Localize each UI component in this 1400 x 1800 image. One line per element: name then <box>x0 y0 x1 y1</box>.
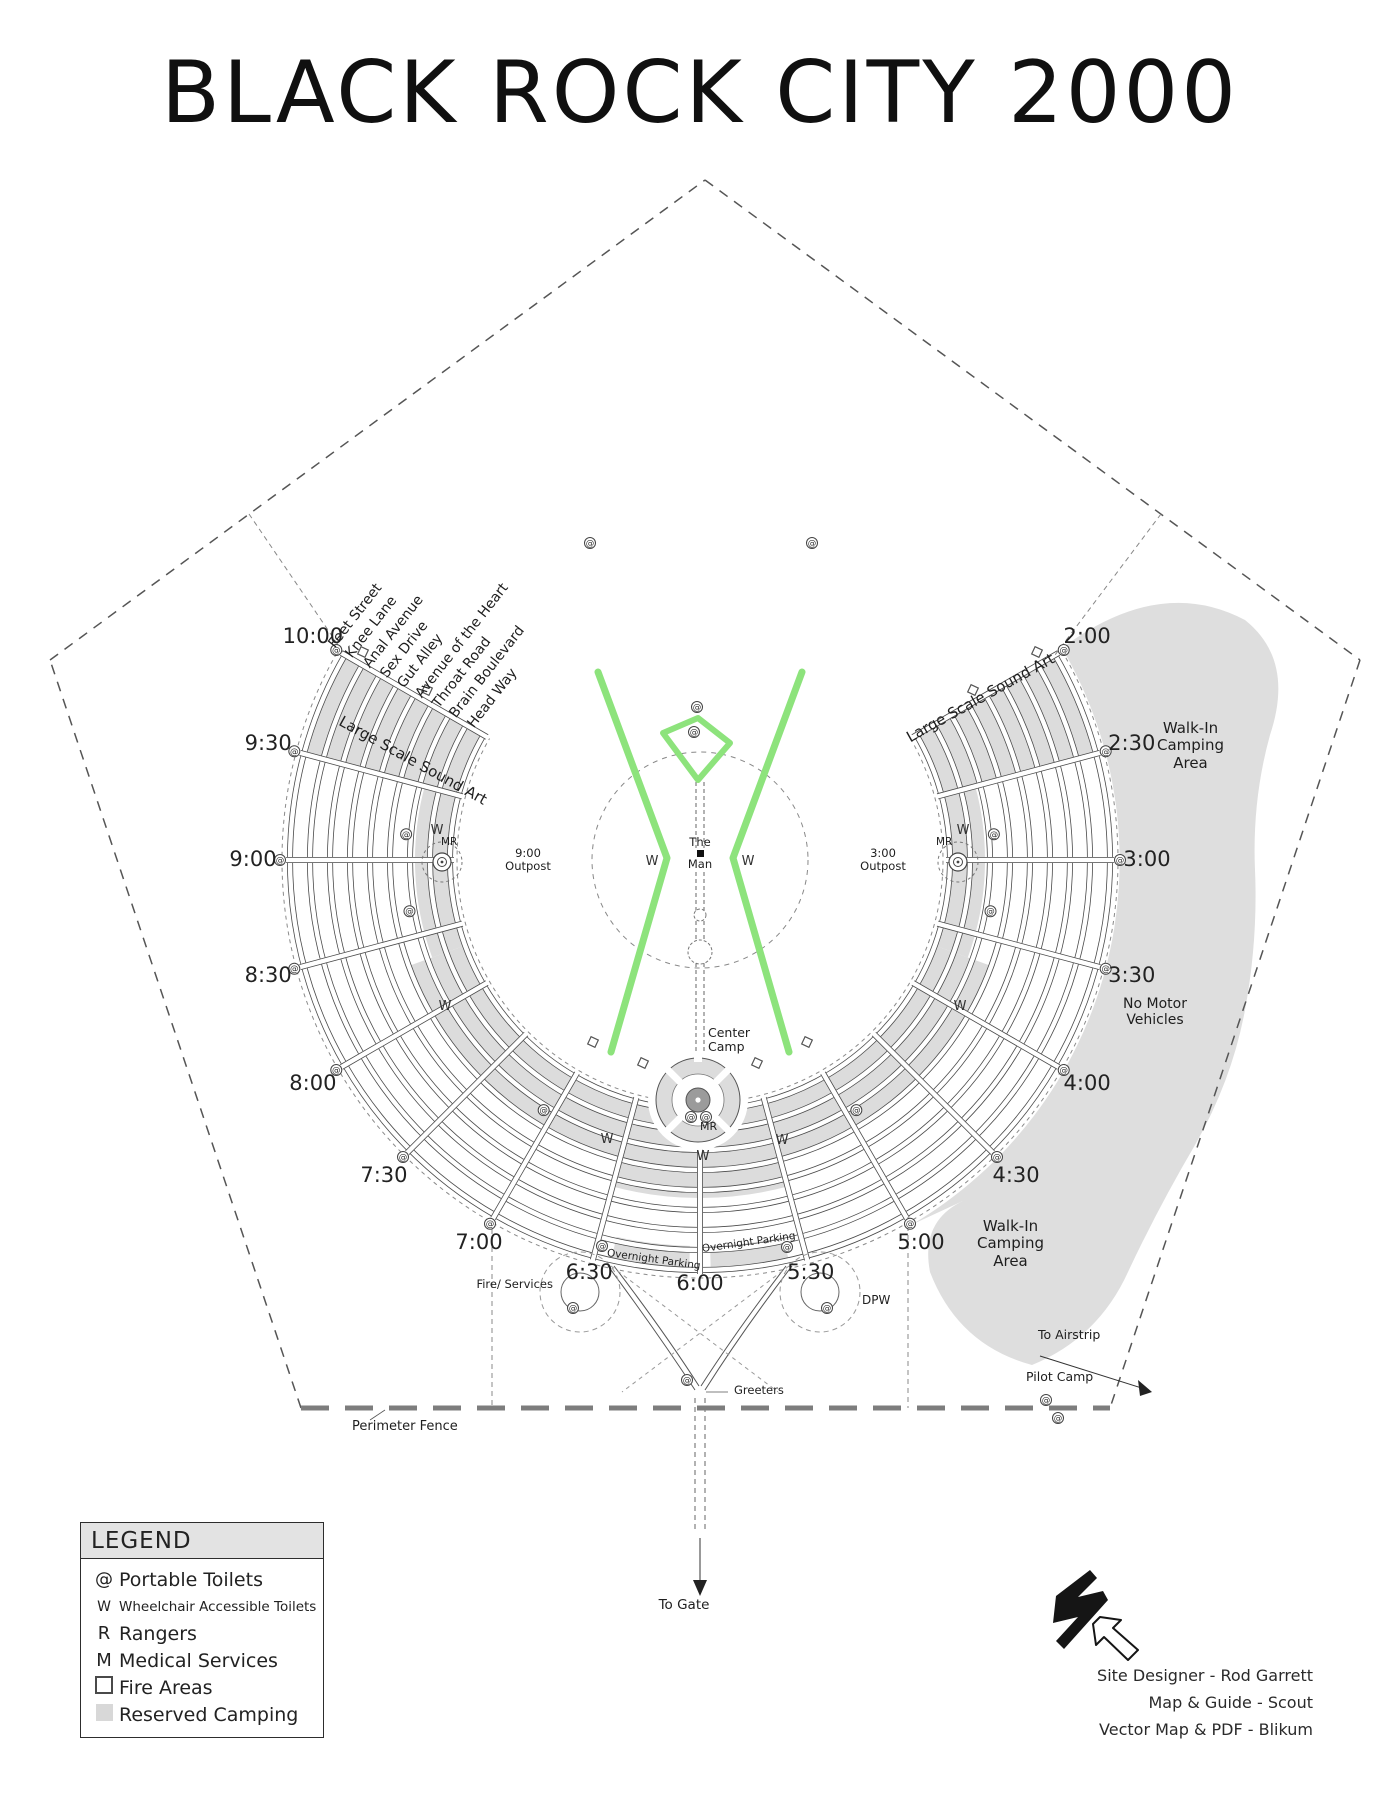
credit-line: Map & Guide - Scout <box>893 1689 1313 1716</box>
the-man-label: The Man <box>664 836 736 871</box>
clock-position-label: 5:00 <box>886 1230 956 1254</box>
perimeter-fence-edge <box>705 180 1360 660</box>
the-man-label-bottom: Man <box>688 857 712 871</box>
clock-position-label: 4:00 <box>1052 1071 1122 1095</box>
svg-text:@: @ <box>1042 1396 1051 1406</box>
clock-position-label: 7:30 <box>349 1163 419 1187</box>
reserved-camping-swatch-cell <box>89 1704 119 1726</box>
portable-toilet-icon: @ <box>807 538 818 550</box>
svg-text:@: @ <box>687 1113 696 1123</box>
svg-text:@: @ <box>399 1153 408 1163</box>
clock-position-label: 2:30 <box>1097 731 1167 755</box>
wheelchair-toilet-icon: W <box>439 999 452 1014</box>
clock-position-label: 3:00 <box>1112 847 1182 871</box>
legend-item: Reserved Camping <box>89 1701 315 1728</box>
svg-text:@: @ <box>690 728 699 738</box>
wheelchair-toilet-icon: W <box>601 1132 614 1147</box>
legend-symbol: R <box>89 1623 119 1644</box>
svg-text:@: @ <box>823 1304 832 1314</box>
legend-symbol: @ <box>89 1569 119 1590</box>
credit-line: Vector Map & PDF - Blikum <box>893 1716 1313 1743</box>
svg-text:@: @ <box>486 1220 495 1230</box>
clock-position-label: 2:00 <box>1052 624 1122 648</box>
legend-item: Fire Areas <box>89 1674 315 1701</box>
outpost-9-label: 9:00 Outpost <box>497 847 559 873</box>
svg-text:@: @ <box>586 539 595 549</box>
svg-text:@: @ <box>852 1106 861 1116</box>
the-man-label-top: The <box>689 835 710 849</box>
portable-toilet-icon: @ <box>822 1303 833 1315</box>
clock-position-label: 3:30 <box>1097 963 1167 987</box>
fire-area-icon <box>802 1037 813 1048</box>
perimeter-fence-label: Perimeter Fence <box>352 1420 458 1435</box>
perimeter-fence-edge <box>50 660 301 1408</box>
mr-label-center-camp: MR <box>700 1121 717 1134</box>
clock-position-label: 6:30 <box>554 1260 624 1284</box>
portable-toilet-icon: @ <box>905 1218 916 1230</box>
fire-area-swatch <box>95 1676 113 1694</box>
pilot-camp-label: Pilot Camp <box>1026 1370 1093 1384</box>
brc-map-page: @@@@@@@@@@@@@@@@@@@WWWWWWWWW@@@@@@@@@@@@… <box>0 0 1400 1800</box>
wheelchair-toilet-icon: W <box>697 1149 710 1164</box>
wheelchair-toilet-icon: W <box>646 854 659 869</box>
wheelchair-toilet-icon: W <box>776 1133 789 1148</box>
fire-area-icon <box>588 1037 599 1048</box>
credits: Site Designer - Rod GarrettMap & Guide -… <box>893 1662 1313 1743</box>
portable-toilet-icon: @ <box>485 1218 496 1230</box>
greeters-label: Greeters <box>734 1384 784 1397</box>
legend-box: LEGEND @Portable ToiletsWWheelchair Acce… <box>80 1522 324 1738</box>
to-gate-label: To Gate <box>644 1598 724 1614</box>
portable-toilet-icon: @ <box>851 1105 862 1117</box>
portable-toilet-icon: @ <box>682 1375 693 1387</box>
svg-text:@: @ <box>906 1220 915 1230</box>
svg-text:@: @ <box>405 907 414 917</box>
svg-text:@: @ <box>808 539 817 549</box>
portable-toilet-icon: @ <box>597 1241 608 1253</box>
legend-items: @Portable ToiletsWWheelchair Accessible … <box>81 1559 323 1737</box>
legend-item-label: Fire Areas <box>119 1677 213 1699</box>
fire-area-swatch-cell <box>89 1676 119 1699</box>
clock-position-label: 5:30 <box>776 1260 846 1284</box>
legend-item-label: Medical Services <box>119 1650 278 1672</box>
legend-symbol: M <box>89 1650 119 1671</box>
portable-toilet-icon: @ <box>1041 1395 1052 1407</box>
svg-text:@: @ <box>402 830 411 840</box>
clock-position-label: 7:00 <box>444 1230 514 1254</box>
svg-text:@: @ <box>986 907 995 917</box>
center-camp-label: Center Camp <box>708 1026 764 1055</box>
page-title: BLACK ROCK CITY 2000 <box>0 44 1400 143</box>
mr-label-9-outpost: MR <box>441 836 457 848</box>
svg-text:@: @ <box>539 1106 548 1116</box>
portable-toilet-icon: @ <box>1053 1413 1064 1425</box>
legend-item: MMedical Services <box>89 1647 315 1674</box>
svg-text:@: @ <box>569 1304 578 1314</box>
portable-toilet-icon: @ <box>991 1151 1002 1163</box>
north-arrow-pointer-icon <box>1093 1617 1138 1660</box>
portable-toilet-icon: @ <box>585 538 596 550</box>
portable-toilet-icon: @ <box>985 906 996 918</box>
legend-title: LEGEND <box>81 1523 323 1559</box>
portable-toilet-icon: @ <box>398 1151 409 1163</box>
svg-text:@: @ <box>1054 1414 1063 1424</box>
fire-services-label: Fire/ Services <box>473 1278 553 1291</box>
fire-area-icon <box>638 1058 649 1069</box>
clock-position-label: 9:30 <box>233 731 303 755</box>
walk-in-camping-label-lower: Walk-In Camping Area <box>963 1218 1058 1270</box>
portable-toilet-icon: @ <box>538 1105 549 1117</box>
reserved-camping-swatch <box>96 1704 113 1721</box>
clock-position-label: 6:00 <box>665 1271 735 1295</box>
to-airstrip-label: To Airstrip <box>1038 1328 1100 1342</box>
legend-item-label: Rangers <box>119 1623 197 1645</box>
legend-item-label: Wheelchair Accessible Toilets <box>119 1599 316 1615</box>
credit-line: Site Designer - Rod Garrett <box>893 1662 1313 1689</box>
legend-item: RRangers <box>89 1620 315 1647</box>
clock-position-label: 8:00 <box>278 1071 348 1095</box>
portable-toilet-icon: @ <box>404 906 415 918</box>
wheelchair-toilet-icon: W <box>742 854 755 869</box>
clock-position-label: 4:30 <box>981 1163 1051 1187</box>
man-marker-icon <box>697 850 704 857</box>
dpw-label: DPW <box>862 1294 890 1308</box>
to-airstrip-arrow-icon <box>1138 1380 1152 1396</box>
portable-toilet-icon: @ <box>692 702 703 714</box>
legend-symbol: W <box>89 1599 119 1615</box>
to-gate-arrow-icon <box>693 1580 707 1596</box>
outpost-3-label: 3:00 Outpost <box>852 847 914 873</box>
legend-item: @Portable Toilets <box>89 1566 315 1593</box>
clock-position-label: 8:30 <box>233 963 303 987</box>
svg-text:@: @ <box>993 1153 1002 1163</box>
mr-label-3-outpost: MR <box>936 836 952 848</box>
portable-toilet-icon: @ <box>686 1112 697 1124</box>
fire-area-icon <box>752 1058 763 1069</box>
clock-position-label: 9:00 <box>218 847 288 871</box>
legend-item-label: Reserved Camping <box>119 1704 298 1726</box>
portable-toilet-icon: @ <box>568 1303 579 1315</box>
portable-toilet-icon: @ <box>988 829 999 841</box>
svg-text:@: @ <box>683 1376 692 1386</box>
svg-text:@: @ <box>598 1242 607 1252</box>
portable-toilet-icon: @ <box>689 727 700 739</box>
legend-item: WWheelchair Accessible Toilets <box>89 1593 315 1620</box>
portable-toilet-icon: @ <box>401 829 412 841</box>
svg-text:@: @ <box>693 703 702 713</box>
no-motor-vehicles-label: No Motor Vehicles <box>1112 996 1198 1028</box>
svg-text:@: @ <box>783 1243 792 1253</box>
svg-text:@: @ <box>990 830 999 840</box>
legend-item-label: Portable Toilets <box>119 1569 263 1591</box>
wheelchair-toilet-icon: W <box>954 999 967 1014</box>
wheelchair-toilet-icon: W <box>957 823 970 838</box>
